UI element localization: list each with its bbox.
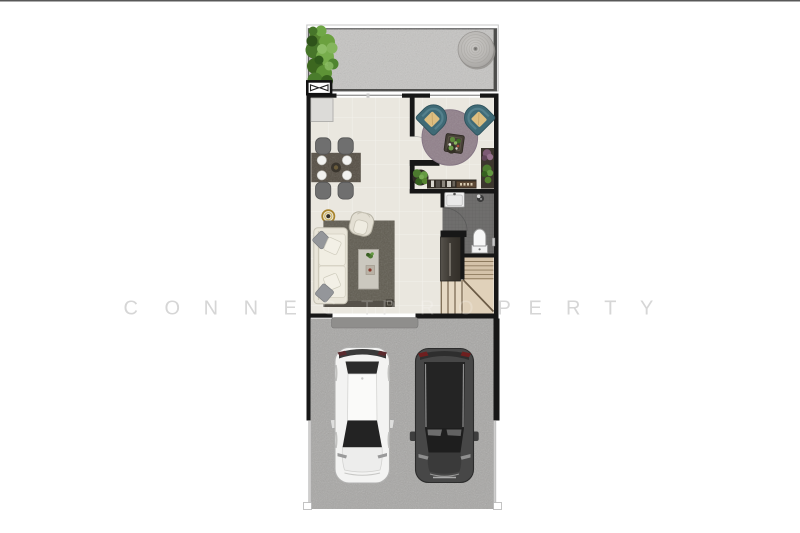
- svg-text:C: C: [322, 298, 336, 320]
- svg-text:N: N: [204, 298, 218, 320]
- svg-text:R: R: [420, 298, 434, 320]
- svg-text:C: C: [124, 298, 138, 320]
- svg-text:R: R: [566, 298, 580, 320]
- svg-text:T: T: [604, 298, 616, 320]
- svg-text:Y: Y: [640, 298, 653, 320]
- svg-text:P: P: [382, 298, 395, 320]
- svg-text:E: E: [529, 298, 542, 320]
- svg-text:T: T: [361, 298, 373, 320]
- svg-text:N: N: [244, 298, 258, 320]
- svg-text:E: E: [284, 298, 297, 320]
- svg-text:O: O: [165, 298, 181, 320]
- svg-text:O: O: [458, 298, 474, 320]
- svg-text:P: P: [498, 298, 511, 320]
